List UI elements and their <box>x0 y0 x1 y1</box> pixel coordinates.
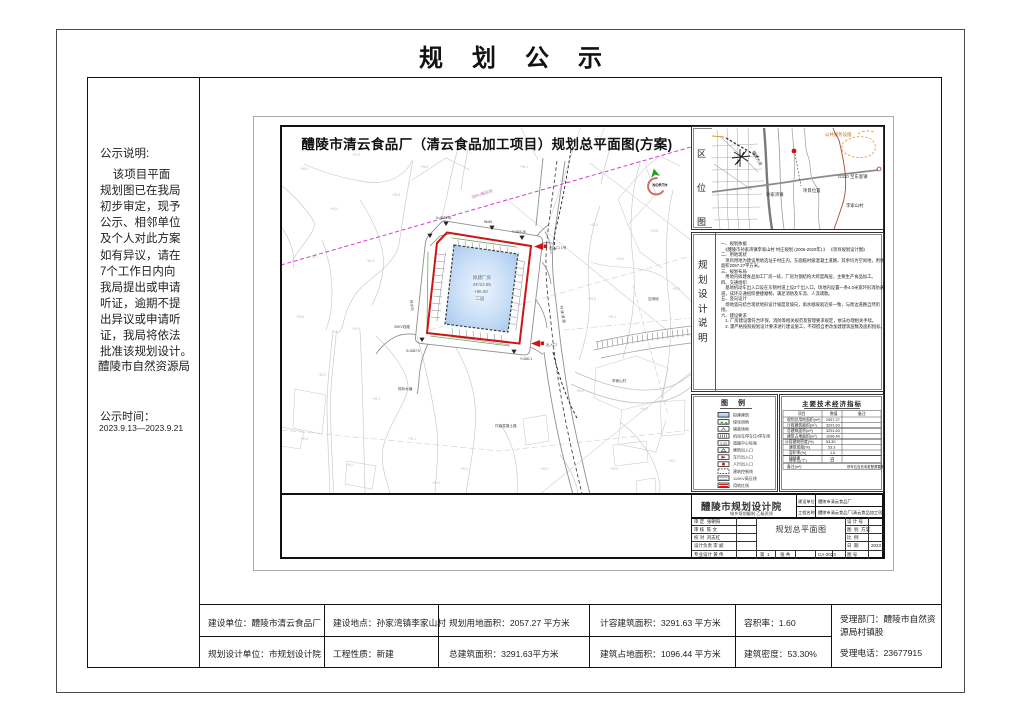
svg-text:拟建建筑: 拟建建筑 <box>733 411 749 417</box>
svg-text:+90.8: +90.8 <box>300 437 308 441</box>
svg-text:机动车停车位/停车场: 机动车停车位/停车场 <box>733 433 770 439</box>
svg-text:12: 12 <box>830 459 834 463</box>
svg-text:+92.9: +92.9 <box>352 327 360 331</box>
svg-text:53.30: 53.30 <box>826 440 836 444</box>
svg-text:停车位(个): 停车位(个) <box>789 458 807 463</box>
svg-text:35KV线路: 35KV线路 <box>394 324 410 329</box>
svg-text:3291.63: 3291.63 <box>826 424 840 428</box>
svg-text:+92.1: +92.1 <box>608 315 616 319</box>
svg-text:+93.8: +93.8 <box>650 229 658 233</box>
svg-text:李家山村: 李家山村 <box>846 202 864 209</box>
svg-text:96.80: 96.80 <box>484 220 492 224</box>
svg-text:+96.4: +96.4 <box>330 207 338 211</box>
svg-text:村级混凝土路: 村级混凝土路 <box>495 423 517 428</box>
svg-text:出入口: 出入口 <box>546 342 557 347</box>
svg-text:+97.5: +97.5 <box>352 153 360 157</box>
svg-text:计容建筑密度(%): 计容建筑密度(%) <box>785 439 814 444</box>
svg-text:G320: G320 <box>838 174 849 179</box>
svg-text:+96.8: +96.8 <box>420 165 428 169</box>
svg-text:备注: 备注 <box>858 411 866 416</box>
svg-text:+94.3: +94.3 <box>366 259 374 263</box>
svg-text:车行出入口: 车行出入口 <box>733 454 753 460</box>
svg-text:+90.2: +90.2 <box>640 407 648 411</box>
svg-text:孙家湾镇: 孙家湾镇 <box>766 191 784 198</box>
svg-text:项目位置: 项目位置 <box>803 187 821 194</box>
svg-text:拟建厂房: 拟建厂房 <box>473 274 491 281</box>
svg-text:+90.0: +90.0 <box>432 481 440 485</box>
svg-text:53.3: 53.3 <box>828 446 835 450</box>
svg-text:总建筑面积(m²): 总建筑面积(m²) <box>787 428 814 433</box>
svg-text:+93.4: +93.4 <box>590 223 598 227</box>
svg-text:+98.2: +98.2 <box>300 167 308 171</box>
svg-text:+96.1: +96.1 <box>520 165 528 169</box>
svg-text:停车位含充电桩配置要求: 停车位含充电桩配置要求 <box>847 464 884 469</box>
svg-text:+90.4: +90.4 <box>460 467 468 471</box>
svg-text:+89.7: +89.7 <box>668 459 676 463</box>
svg-text:0.00: 0.00 <box>720 442 727 446</box>
svg-text:+93.6: +93.6 <box>296 315 304 319</box>
svg-text:2057.27: 2057.27 <box>826 418 840 422</box>
svg-text:X=3037.9: X=3037.9 <box>406 349 420 353</box>
svg-text:规划总用地面积(m²): 规划总用地面积(m²) <box>787 417 821 422</box>
svg-text:铺装场地: 铺装场地 <box>733 426 749 432</box>
svg-text:35KV高压线: 35KV高压线 <box>470 187 493 199</box>
svg-text:Y=519.26: Y=519.26 <box>512 230 526 234</box>
svg-text:人行出入口: 人行出入口 <box>733 461 753 467</box>
svg-text:3291.63: 3291.63 <box>826 429 840 433</box>
svg-text:+91.9: +91.9 <box>672 287 680 291</box>
svg-text:6F/23.95: 6F/23.95 <box>473 282 491 287</box>
svg-text:+89.9: +89.9 <box>540 467 548 471</box>
svg-text:计容建筑面积(m²): 计容建筑面积(m²) <box>787 423 817 428</box>
svg-text:1.6: 1.6 <box>830 451 835 455</box>
svg-text:+96.50: +96.50 <box>474 289 488 294</box>
svg-text:建筑控制线: 建筑控制线 <box>733 468 753 474</box>
svg-text:+92.8: +92.8 <box>588 297 596 301</box>
svg-text:出入口 1号: 出入口 1号 <box>549 245 567 250</box>
svg-text:+92.6: +92.6 <box>616 257 624 261</box>
svg-text:建筑出入口: 建筑出入口 <box>733 447 753 453</box>
svg-text:建筑占地面积(m²): 建筑占地面积(m²) <box>787 434 817 439</box>
svg-text:排水沟: 排水沟 <box>409 300 415 312</box>
svg-text:+90.1: +90.1 <box>346 463 354 467</box>
svg-text:绿化用地: 绿化用地 <box>733 419 749 425</box>
svg-text:NORTH: NORTH <box>653 183 668 188</box>
svg-text:用地红线: 用地红线 <box>733 482 749 488</box>
svg-text:+91.1: +91.1 <box>408 437 416 441</box>
svg-text:Y=520.1: Y=520.1 <box>520 357 532 361</box>
svg-text:公共服务设施: 公共服务设施 <box>825 131 852 138</box>
svg-text:道路中心标高: 道路中心标高 <box>733 440 757 446</box>
svg-text:空闲地: 空闲地 <box>648 296 659 301</box>
svg-text:建筑密度(%): 建筑密度(%) <box>789 445 811 450</box>
svg-text:+92.2: +92.2 <box>318 373 326 377</box>
svg-text:110KV高压线: 110KV高压线 <box>733 475 757 481</box>
svg-text:至东富镇: 至东富镇 <box>850 173 868 180</box>
svg-text:数值: 数值 <box>830 411 838 416</box>
svg-text:+95.8: +95.8 <box>392 193 400 197</box>
svg-text:备注(m²): 备注(m²) <box>787 464 802 469</box>
svg-text:李家山村: 李家山村 <box>612 378 627 383</box>
svg-text:容积率(%): 容积率(%) <box>789 450 807 455</box>
svg-text:项目: 项目 <box>798 411 806 416</box>
svg-text:X=3038.51: X=3038.51 <box>436 216 452 220</box>
svg-text:现状水塘: 现状水塘 <box>398 386 413 391</box>
svg-text:+89.5: +89.5 <box>610 467 618 471</box>
svg-text:村 级 道 路: 村 级 道 路 <box>559 305 567 323</box>
svg-text:+91.5: +91.5 <box>372 397 380 401</box>
svg-text:1096.44: 1096.44 <box>826 435 840 439</box>
